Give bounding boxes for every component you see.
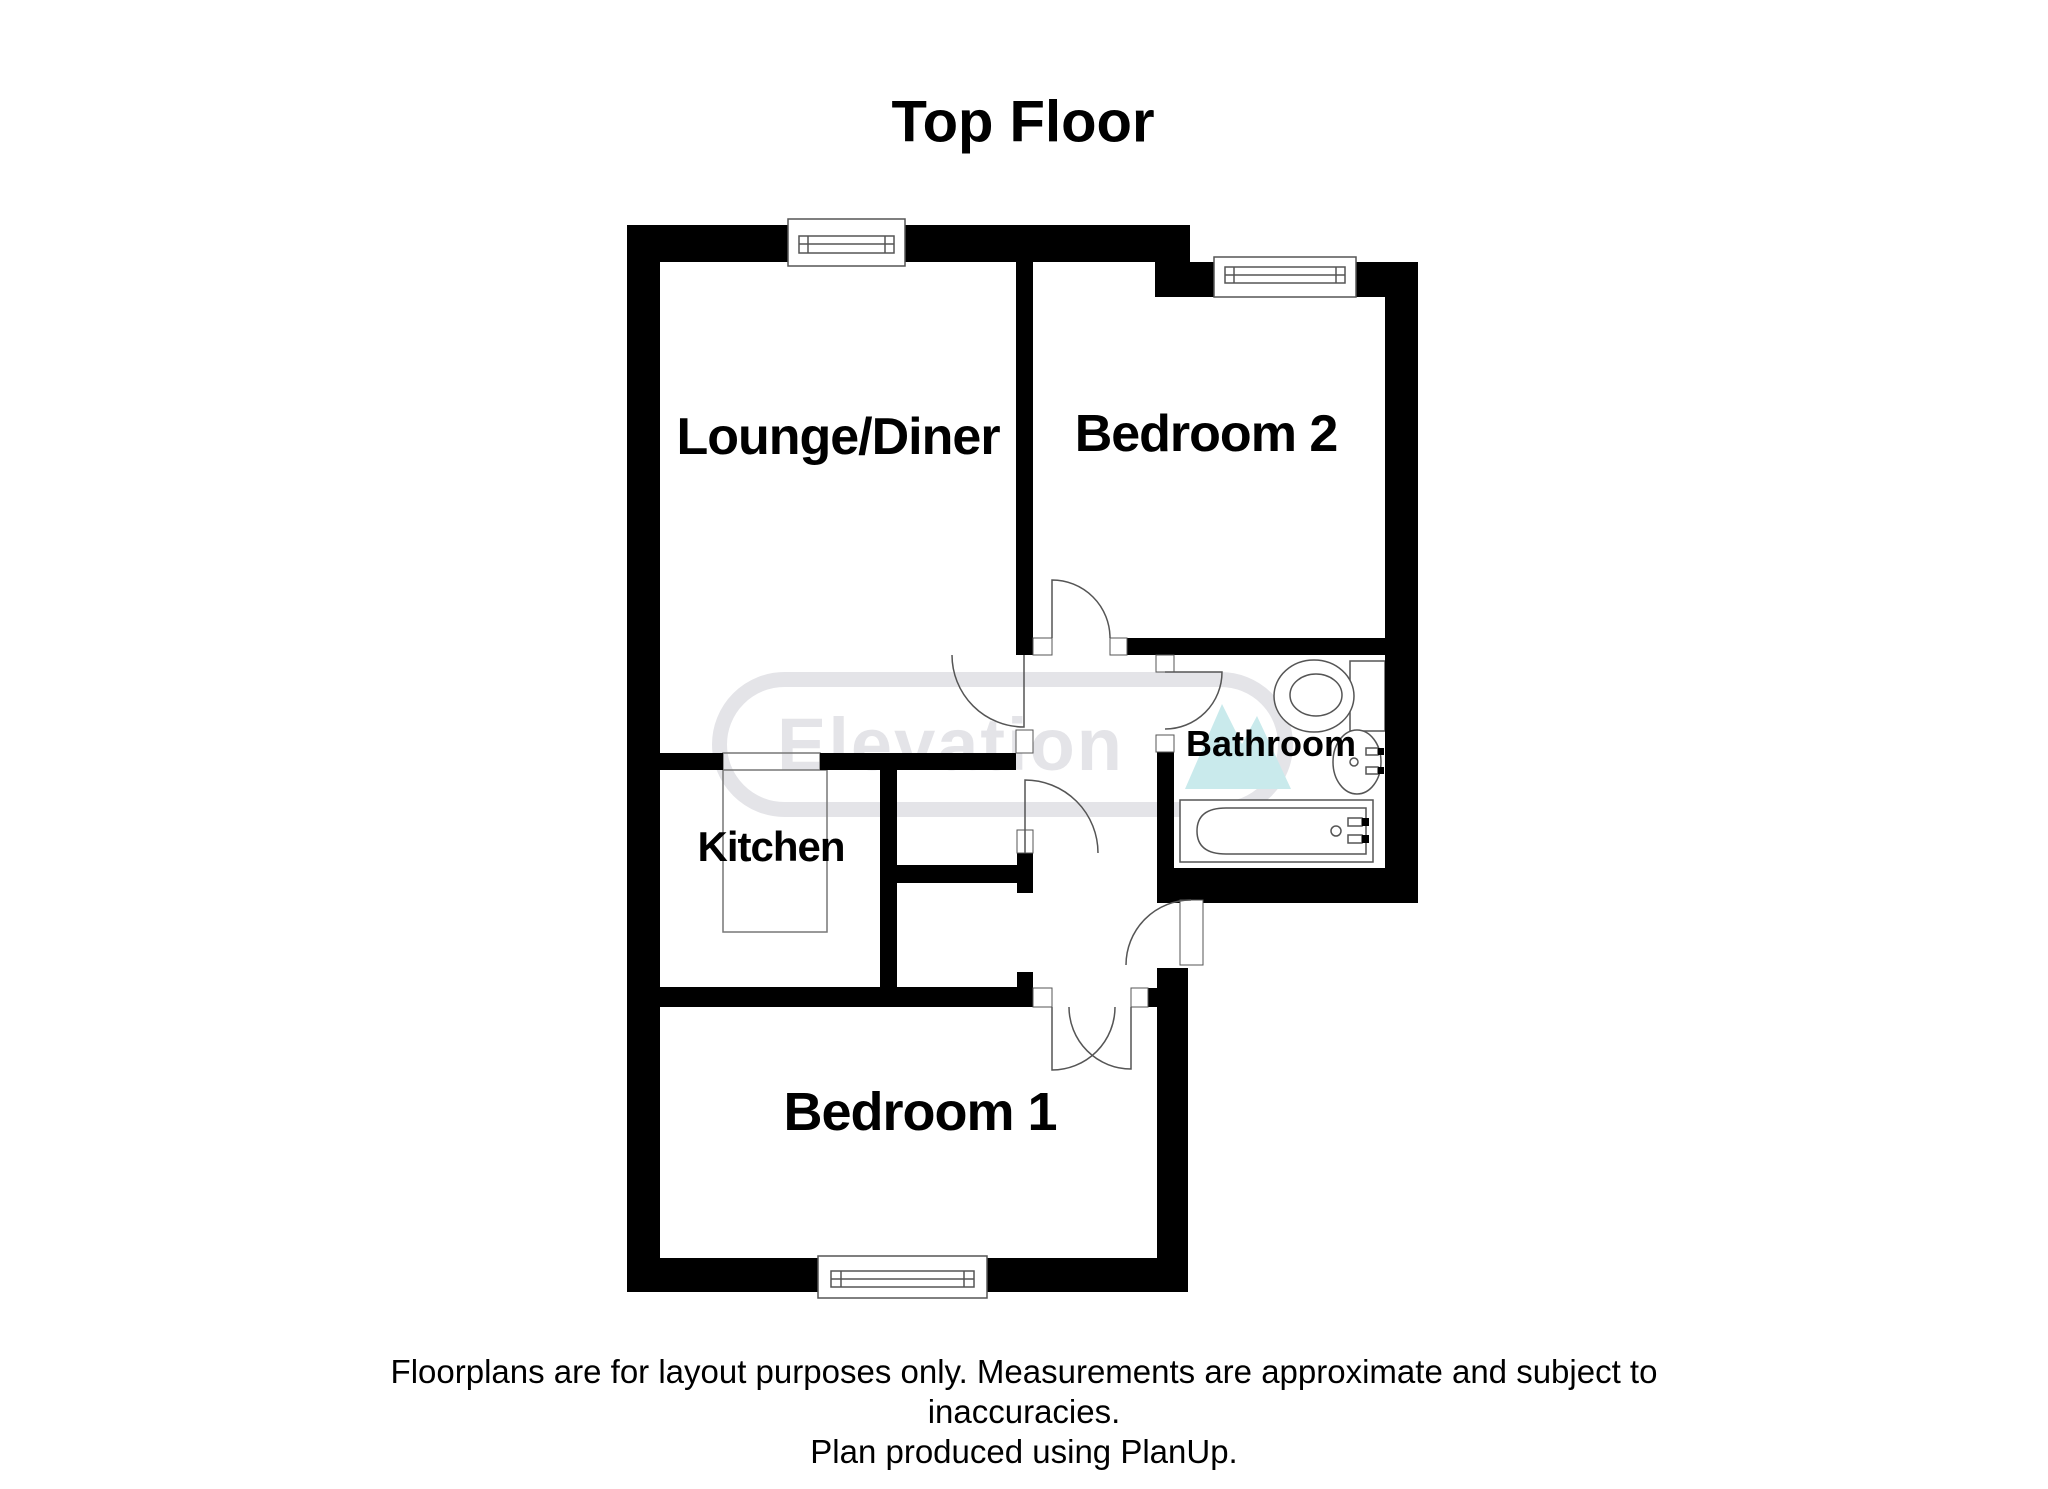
jamb — [1110, 638, 1127, 655]
room-label-bedroom1: Bedroom 1 — [783, 1081, 1056, 1143]
disclaimer-line: Plan produced using PlanUp. — [0, 1432, 2048, 1472]
jamb — [1033, 988, 1052, 1007]
window-bedroom2 — [1214, 257, 1356, 297]
wall-top-left — [627, 225, 1190, 262]
disclaimer-line: inaccuracies. — [0, 1392, 2048, 1432]
window-bedroom1 — [818, 1256, 987, 1298]
jamb — [1156, 735, 1174, 752]
sink-tap — [1366, 767, 1378, 774]
bath-tap — [1348, 818, 1362, 826]
jamb — [1131, 988, 1148, 1007]
wall-midhall — [897, 865, 1033, 883]
floorplan-drawing — [0, 0, 2048, 1489]
bath-tub — [1180, 800, 1373, 862]
wall-bathroom-left — [1157, 752, 1174, 868]
wall-hall-left — [880, 770, 897, 1007]
toilet-cistern — [1350, 661, 1385, 731]
wall-bedroom2-bottom — [1127, 638, 1385, 655]
wall-kitchen-bottom-end — [1017, 972, 1033, 1007]
wall-midhall-end — [1017, 853, 1033, 893]
room-label-lounge: Lounge/Diner — [676, 407, 999, 467]
door-bedroom1-right — [1069, 1007, 1131, 1069]
wall-bedroom1-right — [1157, 968, 1188, 1258]
room-label-kitchen: Kitchen — [697, 823, 844, 871]
room-label-bedroom2: Bedroom 2 — [1075, 404, 1338, 464]
door-bathroom — [1165, 672, 1222, 729]
bath-tap-tip — [1362, 818, 1369, 826]
kitchen-opening-outline — [723, 753, 820, 770]
disclaimer-line: Floorplans are for layout purposes only.… — [0, 1352, 2048, 1392]
wall-kitchen-bottom — [660, 987, 1033, 1007]
sink-tap — [1366, 748, 1378, 755]
sink-tap-tip — [1378, 767, 1384, 774]
wall-lounge-bedroom2-partition — [1016, 262, 1033, 655]
window-lounge — [788, 219, 905, 266]
disclaimer: Floorplans are for layout purposes only.… — [0, 1352, 2048, 1472]
door-bedroom1-left — [1052, 1007, 1115, 1070]
page-title: Top Floor — [891, 89, 1154, 156]
jamb — [1156, 655, 1174, 672]
bath-tap — [1348, 835, 1362, 843]
wall-left — [627, 262, 660, 1292]
floorplan-page: Top Floor Elevation — [0, 0, 2048, 1489]
jamb — [1016, 730, 1033, 753]
door-midhall — [1025, 780, 1098, 853]
wall-bedroom1-door-sliver — [1148, 988, 1157, 1007]
bath-tap-tip — [1362, 835, 1369, 843]
wall-bathroom-bottom — [1157, 868, 1418, 903]
wall-lounge-bottom-a — [660, 753, 723, 770]
entrance-door-leaf — [1180, 900, 1203, 965]
sink-tap-tip — [1378, 748, 1384, 755]
room-label-bathroom: Bathroom — [1186, 723, 1356, 765]
wall-lounge-bottom-b — [820, 753, 1016, 770]
door-lounge — [952, 655, 1024, 727]
door-jambs — [1016, 638, 1203, 1007]
wall-right — [1385, 297, 1418, 903]
door-bedroom2 — [1052, 580, 1110, 638]
jamb — [1033, 638, 1052, 655]
